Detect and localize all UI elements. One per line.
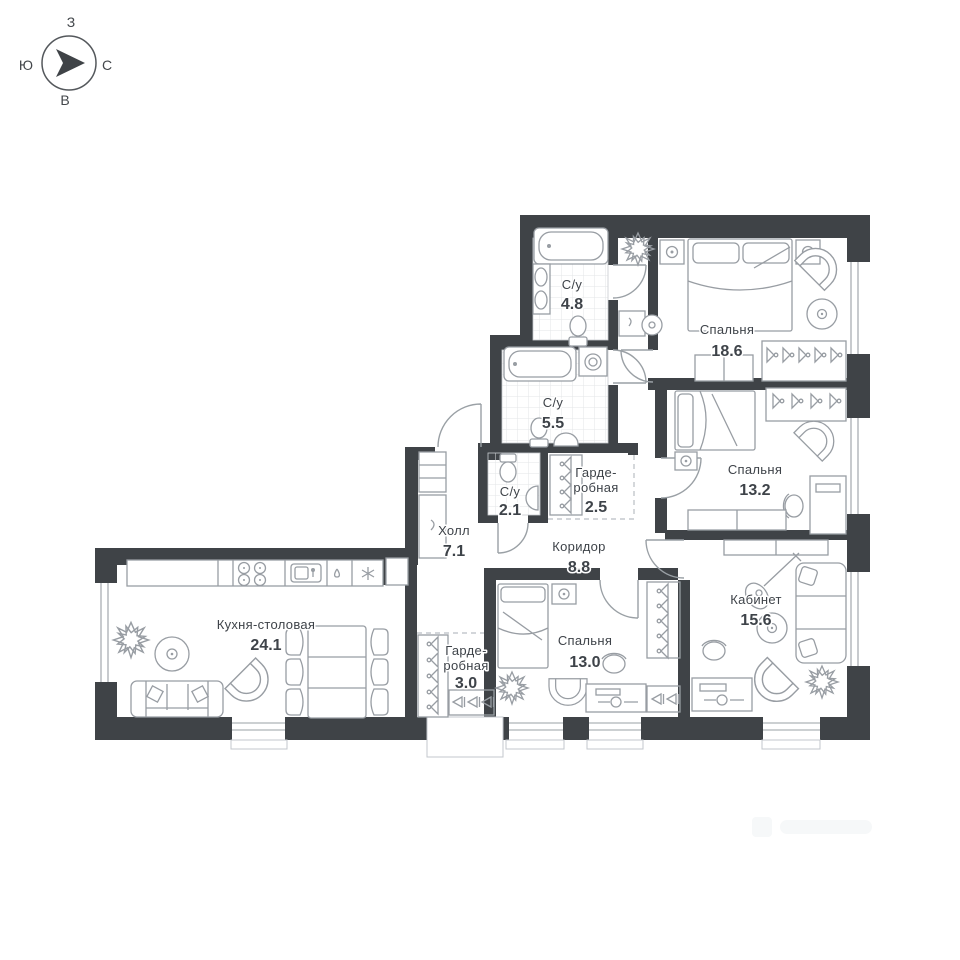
room-label-office: Кабинет <box>730 592 782 607</box>
bedroom-1-door <box>621 350 653 382</box>
bedroom-3-door <box>600 580 638 618</box>
floor-plan-page: С/у 4.8 Спальня 18.6 С/у 5.5 Гарде- робн… <box>0 0 960 960</box>
armchair-icon <box>549 679 587 706</box>
window-sill <box>231 740 287 749</box>
tv-console-icon <box>724 540 828 555</box>
desk-icon <box>810 476 846 534</box>
window-sill <box>506 740 564 749</box>
toilet-icon <box>569 316 587 346</box>
console-icon <box>619 311 645 336</box>
armchair-icon <box>746 658 799 711</box>
stool-icon <box>642 315 662 335</box>
room-label-bedroom-3: Спальня <box>558 633 612 648</box>
chair-icon <box>371 659 388 685</box>
fridge-icon <box>386 558 408 585</box>
compass-right: С <box>102 57 112 73</box>
dining-table-icon <box>308 626 366 718</box>
compass-left: Ю <box>19 57 33 73</box>
washing-machine-icon <box>579 347 607 376</box>
room-area-bathroom-3: 2.1 <box>499 502 521 519</box>
sofa-icon <box>131 681 223 717</box>
room-label-hall: Холл <box>438 523 470 538</box>
room-label-wardrobe-2-line2: робная <box>443 658 488 673</box>
room-label-bathroom-2: С/у <box>543 395 564 410</box>
room-area-bathroom-2: 5.5 <box>542 415 564 432</box>
room-area-kitchen: 24.1 <box>250 637 281 654</box>
room-area-wardrobe-1: 2.5 <box>585 499 607 516</box>
plant-icon <box>804 664 839 699</box>
wardrobe-icon <box>762 341 846 381</box>
room-area-wardrobe-2: 3.0 <box>455 675 477 692</box>
desk-chair-icon <box>602 653 626 673</box>
bedroom-1-furniture <box>660 239 846 381</box>
watermark <box>752 817 872 837</box>
round-table-icon <box>807 299 837 329</box>
room-area-hall: 7.1 <box>443 543 465 560</box>
bathtub-icon <box>504 347 576 381</box>
room-area-corridor: 8.8 <box>568 559 590 576</box>
room-area-bedroom-1: 18.6 <box>711 343 742 360</box>
room-area-bedroom-3: 13.0 <box>569 654 600 671</box>
double-sink-icon <box>533 264 550 314</box>
double-bed-icon <box>688 239 792 331</box>
single-bed-icon <box>498 584 548 668</box>
shoe-rack-icon <box>647 686 680 712</box>
compass-arrow-icon <box>56 49 85 77</box>
room-label-wardrobe-2-line1: Гарде- <box>445 643 486 658</box>
open-wardrobe-icon <box>647 582 680 658</box>
room-label-corridor: Коридор <box>552 539 605 554</box>
chair-icon <box>286 689 303 715</box>
entrance-door <box>438 404 481 447</box>
nightstand-icon <box>675 452 697 470</box>
desk-icon <box>692 678 752 711</box>
room-label-bedroom-2: Спальня <box>728 462 782 477</box>
room-area-bedroom-2: 13.2 <box>739 482 770 499</box>
dresser-icon <box>688 510 786 530</box>
nightstand-icon <box>552 584 576 604</box>
compass-top: З <box>67 14 75 30</box>
room-area-bathroom-1: 4.8 <box>561 296 583 313</box>
room-label-bathroom-3: С/у <box>500 484 521 499</box>
shelving-icon <box>419 452 446 492</box>
chair-icon <box>286 659 303 685</box>
plant-icon <box>494 670 529 705</box>
sofa-icon <box>796 563 846 663</box>
kitchen-counter <box>127 560 383 586</box>
wardrobe-icon <box>766 388 846 421</box>
entry-porch <box>427 717 503 757</box>
window-sill <box>762 740 820 749</box>
window-sill <box>587 740 643 749</box>
room-label-bathroom-1: С/у <box>562 277 583 292</box>
room-area-office: 15.6 <box>740 612 771 629</box>
armchair-icon <box>225 658 277 710</box>
bathroom-2-door <box>613 350 646 383</box>
compass: З Ю С В <box>19 14 112 108</box>
bathtub-icon <box>534 228 608 264</box>
chair-icon <box>371 689 388 715</box>
toilet-icon <box>500 454 516 482</box>
bathroom-3-door <box>498 523 528 553</box>
room-label-wardrobe-1-line1: Гарде- <box>575 465 616 480</box>
desk-chair-icon <box>702 640 726 660</box>
chair-icon <box>371 629 388 655</box>
bathroom-1-door <box>613 265 646 298</box>
dressing-table-icon <box>586 684 646 712</box>
compass-bottom: В <box>60 92 69 108</box>
single-bed-icon <box>675 391 755 450</box>
chair-icon <box>286 629 303 655</box>
room-label-bedroom-1: Спальня <box>700 322 754 337</box>
floor-plan: С/у 4.8 Спальня 18.6 С/у 5.5 Гарде- робн… <box>0 0 960 960</box>
room-label-wardrobe-1-line2: робная <box>573 480 618 495</box>
nightstand-icon <box>660 240 684 264</box>
coffee-table-icon <box>155 637 189 671</box>
room-label-kitchen: Кухня-столовая <box>217 617 316 632</box>
